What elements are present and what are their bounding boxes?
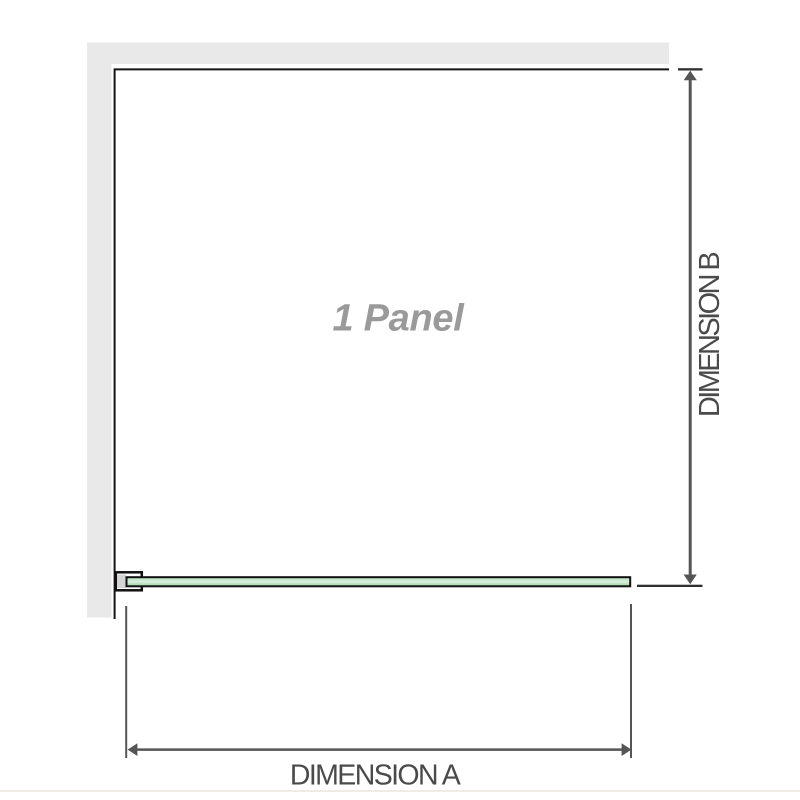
- svg-text:1 Panel: 1 Panel: [333, 298, 466, 340]
- svg-text:DIMENSION B: DIMENSION B: [694, 253, 726, 417]
- svg-text:DIMENSION A: DIMENSION A: [290, 759, 461, 791]
